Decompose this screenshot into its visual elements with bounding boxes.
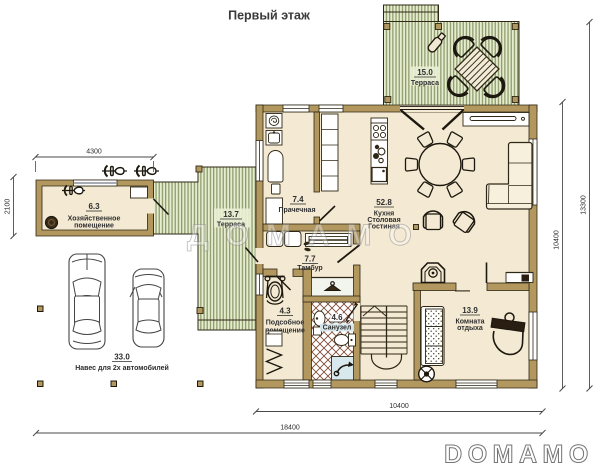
svg-text:ДОМАМО: ДОМАМО: [187, 219, 429, 252]
svg-text:7.7: 7.7: [304, 255, 316, 264]
svg-text:Тамбур: Тамбур: [297, 264, 322, 272]
svg-text:2100: 2100: [5, 199, 12, 215]
svg-text:4300: 4300: [86, 149, 102, 156]
svg-text:4.3: 4.3: [279, 307, 291, 316]
svg-text:помещение: помещение: [74, 223, 114, 230]
svg-text:13300: 13300: [581, 195, 588, 215]
svg-text:Терраса: Терраса: [411, 80, 439, 87]
svg-text:отдыха: отдыха: [457, 325, 483, 332]
svg-text:Хозяйственное: Хозяйственное: [68, 215, 121, 223]
svg-text:Прачечная: Прачечная: [278, 207, 315, 214]
svg-text:33.0: 33.0: [114, 353, 130, 362]
svg-text:DOMAMO: DOMAMO: [444, 441, 594, 469]
svg-text:7.4: 7.4: [292, 195, 304, 204]
svg-text:13.9: 13.9: [462, 306, 478, 315]
svg-text:18400: 18400: [280, 425, 300, 432]
svg-text:15.0: 15.0: [417, 68, 433, 77]
svg-text:Подсобное: Подсобное: [266, 319, 305, 327]
svg-text:Навес для 2х автомобилей: Навес для 2х автомобилей: [75, 364, 169, 372]
svg-text:6.3: 6.3: [88, 202, 100, 211]
svg-text:52.8: 52.8: [376, 198, 392, 207]
svg-text:10400: 10400: [389, 403, 409, 410]
svg-text:Санузел: Санузел: [323, 325, 352, 332]
svg-text:10400: 10400: [554, 230, 561, 250]
svg-text:13.7: 13.7: [223, 210, 239, 219]
svg-text:Первый этаж: Первый этаж: [228, 9, 310, 23]
svg-text:4.6: 4.6: [331, 313, 343, 322]
